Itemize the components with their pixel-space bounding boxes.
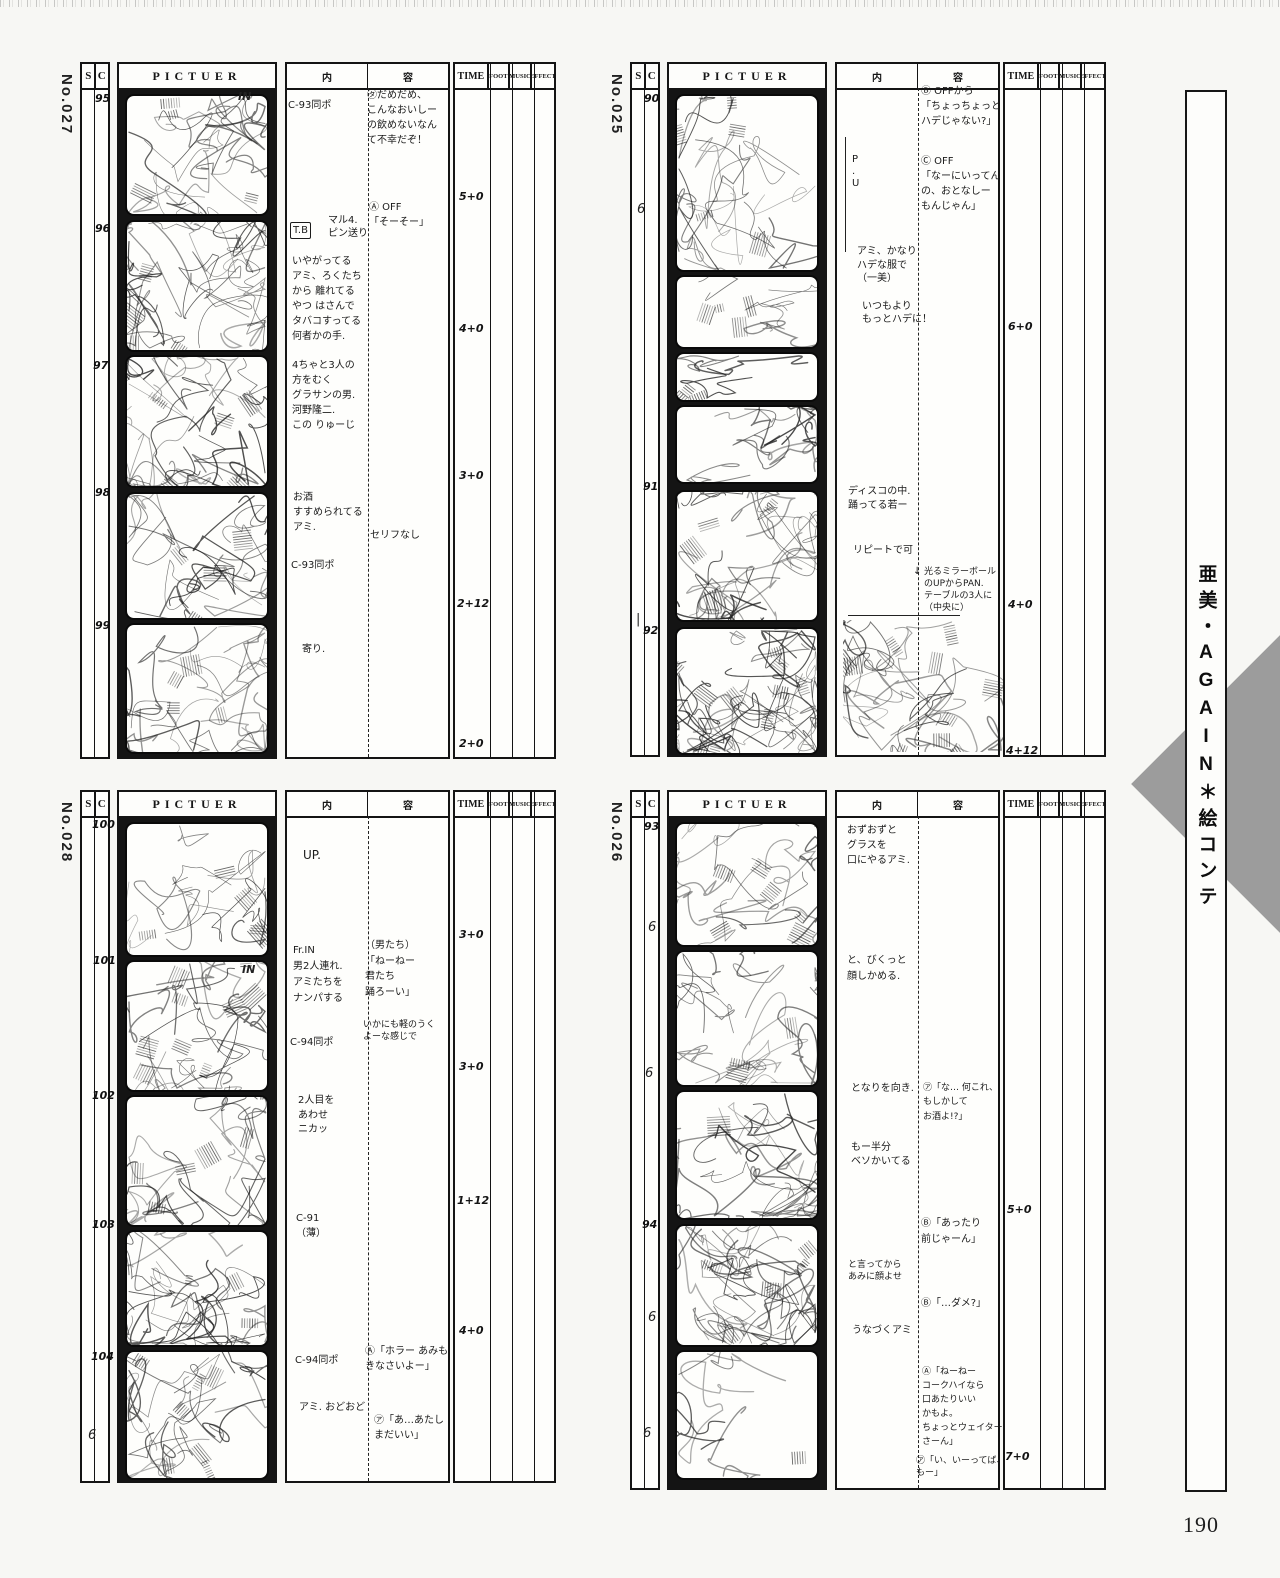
column-header-music: MUSIC: [510, 64, 532, 88]
dialogue-note: ㋟だめだめ、 こんなおいしー の飲めないなん て不幸だぞ！: [367, 88, 437, 148]
storyboard-frame: [675, 94, 819, 272]
storyboard-frame: [675, 822, 819, 947]
picture-filmstrip: PICTUER: [117, 790, 277, 1483]
storyboard-frame: [675, 950, 819, 1087]
column-header-music: MUSIC: [1060, 64, 1082, 88]
column-header-time: TIME: [1005, 64, 1039, 88]
storyboard-frame: [125, 1095, 269, 1227]
action-note: UP.: [303, 846, 321, 864]
pencil-sketch: [127, 962, 267, 1090]
dialogue-note: ㋐「あ…あたし まだいい」: [374, 1413, 444, 1443]
cut-number: 95: [95, 92, 110, 105]
action-note: C-93同ポ: [288, 98, 331, 113]
action-note: いやがってる アミ、ろくたち から 離れてる やつ はさんで タバコすってる 何…: [292, 254, 362, 344]
action-note: 2人目を あわせ ニカッ: [298, 1094, 334, 1138]
column-header-content-left: 内: [837, 792, 917, 816]
time-value: 5+0: [1007, 1203, 1032, 1216]
c-column-tick: 6: [648, 1310, 656, 1325]
camera-note-pan-up: P . U: [852, 154, 859, 190]
pencil-sketch: [127, 1232, 267, 1345]
action-note: C-94同ポ: [290, 1035, 333, 1050]
column-header-s: S: [632, 792, 645, 816]
time-value: 3+0: [459, 469, 484, 482]
column-header-music: MUSIC: [1060, 792, 1082, 816]
storyboard-frame: [125, 355, 269, 488]
pencil-sketch: [127, 494, 267, 618]
pencil-sketch: [127, 357, 267, 486]
sketch-stray-line: [848, 615, 960, 616]
crowd-sketch-overflow: [843, 620, 1003, 752]
storyboard-frame: [675, 1350, 819, 1480]
action-note: お酒 すすめられてる アミ.: [293, 490, 363, 535]
column-header-c: C: [95, 792, 109, 816]
pencil-sketch: [127, 1352, 267, 1478]
time-value: 2+0: [459, 737, 484, 750]
cut-number: 90: [644, 92, 659, 105]
column-header-foot: FOOT: [489, 792, 510, 816]
time-value: 2+12: [457, 597, 489, 610]
time-value: 3+0: [459, 1060, 484, 1073]
pencil-sketch: [127, 1097, 267, 1225]
column-header-picture: PICTUER: [119, 64, 275, 90]
column-header-time: TIME: [455, 792, 489, 816]
time-value: 5+0: [459, 190, 484, 203]
page-number: 190: [1183, 1512, 1219, 1538]
column-header-content-left: 内: [287, 64, 367, 88]
sheet-number-label: No.027: [58, 74, 75, 135]
column-header-effect: EFFECT: [1082, 792, 1104, 816]
pencil-sketch: [127, 824, 267, 955]
column-header-c: C: [645, 64, 659, 88]
dialogue-note: Ⓐ OFF 「そーそー」: [369, 200, 429, 230]
pencil-sketch: [677, 96, 817, 270]
c-column-tick: 6: [648, 920, 656, 935]
picture-filmstrip: PICTUER: [667, 790, 827, 1490]
s-column-tick: |: [636, 612, 640, 627]
storyboard-frame: [125, 1230, 269, 1347]
time-value: 7+0: [1005, 1450, 1030, 1463]
cut-number: 91: [643, 480, 658, 493]
vertical-title-strip: 亜美・AGAIN＊絵コンテ: [1185, 90, 1227, 1492]
column-header-music: MUSIC: [510, 792, 532, 816]
pencil-sketch: [677, 354, 817, 400]
column-header-content-right: 容: [917, 792, 998, 816]
cut-number: 101: [93, 954, 116, 967]
content-dashed-divider: [918, 816, 919, 1488]
storyboard-frame: [125, 822, 269, 957]
time-value: 1+12: [457, 1194, 489, 1207]
sheet-number-label: No.026: [608, 802, 625, 863]
dialogue-note: Ⓑ「あったり 前じゃーん」: [921, 1216, 981, 1247]
storyboard-frame: [675, 405, 819, 484]
pencil-sketch: [127, 222, 267, 350]
action-note: 4ちゃと3人の 方をむく グラサンの男. 河野隆二. この りゅーじ: [292, 358, 355, 433]
pencil-sketch: [677, 1226, 817, 1345]
pencil-sketch: [677, 407, 817, 482]
action-note: マル4. ピン送り: [328, 214, 368, 240]
picture-filmstrip: PICTUER: [117, 62, 277, 759]
storyboard-frame: [675, 1090, 819, 1220]
action-note: アミ. おどおど: [299, 1400, 365, 1415]
picture-filmstrip: PICTUER: [667, 62, 827, 757]
action-note: ディスコの中. 踊ってる若ー: [848, 485, 910, 513]
column-header-effect: EFFECT: [532, 64, 554, 88]
action-note: と、びくっと 顔しかめる.: [847, 953, 907, 985]
content-dashed-divider: [368, 88, 369, 757]
storyboard-frame: [125, 220, 269, 352]
c-column-tick: 6: [645, 1066, 653, 1081]
cut-number: 102: [92, 1089, 115, 1102]
cut-number: 100: [92, 818, 115, 831]
storyboard-frame: [125, 623, 269, 754]
action-note: もー半分 ベソかいてる: [851, 1141, 911, 1168]
cut-number: 96: [95, 222, 110, 235]
column-header-foot: FOOT: [489, 64, 510, 88]
action-note: C-91 （薄）: [296, 1211, 326, 1241]
storyboard-frame: [675, 1224, 819, 1347]
storyboard-sheet-028: No.028 S C 100 101 102 103 104 6 PICTUER…: [80, 790, 556, 1483]
storyboard-frame: [125, 94, 269, 216]
time-value: 4+0: [459, 322, 484, 335]
cut-number: 94: [642, 1218, 657, 1231]
action-note: アミ、かなり ハデな服で （一美）: [857, 245, 917, 286]
column-header-picture: PICTUER: [669, 792, 825, 818]
down-arrow-mark: ↓: [913, 564, 921, 579]
camera-note: 光るミラーボール のUPからPAN. テーブルの3人に （中央に）: [924, 566, 996, 615]
dialogue-note: Ⓐ「ホラー あみも きなさいよー」: [365, 1344, 448, 1374]
storyboard-sheet-025: No.025 S C 90 91 92 6 | PICTUER 内 容: [630, 62, 1106, 757]
s-column-tick: 6: [637, 202, 645, 217]
action-note: いつもより もっとハデに！: [862, 300, 932, 326]
cut-number: 92: [643, 624, 658, 637]
dialogue-note: セリフなし: [370, 528, 420, 543]
column-header-time: TIME: [455, 64, 489, 88]
frame-in-mark: IN: [242, 963, 255, 976]
column-header-picture: PICTUER: [119, 792, 275, 818]
column-header-content-right: 容: [367, 64, 448, 88]
storyboard-sheet-026: No.026 S C 93 94 6 6 6 6 PICTUER 内 容: [630, 790, 1106, 1490]
storyboard-frame: [675, 275, 819, 349]
column-header-picture: PICTUER: [669, 64, 825, 90]
time-value: 4+0: [459, 1324, 484, 1337]
column-header-time: TIME: [1005, 792, 1039, 816]
cut-number: 103: [92, 1218, 115, 1231]
dialogue-note: Ⓐ「ねーねー コークハイなら 口あたりいい かもよ。 ちょっとウェイター さーん…: [922, 1366, 1003, 1450]
column-header-c: C: [95, 64, 109, 88]
frame-in-mark: IN: [238, 90, 251, 103]
cut-number: 93: [644, 820, 659, 833]
dialogue-note: （男たち） 「ねーねー 君たち 踊ろーい」: [365, 938, 415, 1000]
time-value: 4+12: [1006, 744, 1038, 757]
storyboard-sheet-027: No.027 S C 95 96 97 98 99 PICTUER IN 内 容: [80, 62, 556, 759]
s-column-tick: 6: [88, 1428, 96, 1443]
pencil-sketch: [127, 96, 267, 214]
column-header-s: S: [82, 64, 95, 88]
sheet-number-label: No.025: [608, 74, 625, 135]
scan-noise-band: [0, 0, 1280, 7]
column-header-s: S: [632, 64, 645, 88]
pencil-sketch: [677, 629, 817, 753]
storyboard-frame: [675, 490, 819, 622]
dialogue-note: Ⓑ OFFから 「ちょっちょっと ハデじゃない?」: [921, 84, 1001, 129]
action-note: うなづくアミ: [852, 1323, 912, 1338]
time-value: 4+0: [1008, 598, 1033, 611]
cut-number: 97: [93, 359, 108, 372]
pencil-sketch: [677, 824, 817, 945]
sc-column-box: S C: [630, 62, 660, 757]
pencil-sketch: [127, 625, 267, 752]
pencil-sketch: [677, 1352, 817, 1478]
action-note: おずおずと グラスを 口にやるアミ.: [847, 823, 910, 868]
time-columns-box: TIME FOOT MUSIC EFFECT: [453, 790, 556, 1483]
column-header-foot: FOOT: [1039, 64, 1060, 88]
column-header-foot: FOOT: [1039, 792, 1060, 816]
storyboard-frame: [675, 627, 819, 755]
time-columns-box: TIME FOOT MUSIC EFFECT: [1003, 62, 1106, 757]
column-header-effect: EFFECT: [1082, 64, 1104, 88]
sheet-number-label: No.028: [58, 802, 75, 863]
dialogue-note: いかにも軽のうく よーな感じで: [363, 1020, 435, 1043]
column-header-s: S: [82, 792, 95, 816]
pencil-sketch: [677, 952, 817, 1085]
storyboard-frame: [125, 960, 269, 1092]
cut-number: 104: [91, 1350, 114, 1363]
dialogue-note: ㋐「い、いーってば、 もー」: [916, 1456, 1005, 1479]
action-note: Fr.IN 男2人連れ. アミたちを ナンパする: [293, 943, 343, 1007]
column-header-content-left: 内: [837, 64, 917, 88]
action-note: C-94同ポ: [295, 1353, 338, 1368]
cut-number: 98: [95, 486, 110, 499]
dialogue-note: Ⓑ「…ダメ?」: [921, 1296, 986, 1311]
storyboard-frame: [125, 1350, 269, 1480]
dialogue-note: ㋐「な… 何これ、 もしかして お酒よ!?」: [923, 1081, 998, 1124]
time-columns-box: TIME FOOT MUSIC EFFECT: [1003, 790, 1106, 1490]
dialogue-note: Ⓒ OFF 「なーにいってん の、おとなしー もんじゃん」: [921, 154, 1001, 214]
action-note: 寄り.: [302, 642, 325, 657]
column-header-content-right: 容: [367, 792, 448, 816]
pencil-sketch: [677, 492, 817, 620]
episode-title-vertical: 亜美・AGAIN＊絵コンテ: [1193, 564, 1220, 1490]
pan-up-arrow: [845, 137, 846, 252]
sc-column-box: S C: [80, 790, 110, 1483]
sc-column-box: S C: [630, 790, 660, 1490]
action-note: と言ってから あみに顔よせ: [848, 1260, 902, 1283]
pencil-sketch: [677, 277, 817, 347]
action-note-tb: T.B: [290, 222, 311, 239]
pencil-sketch: [677, 1092, 817, 1218]
content-dashed-divider: [368, 816, 369, 1481]
action-note: リピートで可: [853, 543, 913, 558]
column-header-c: C: [645, 792, 659, 816]
c-column-tick: 6: [643, 1426, 651, 1441]
sc-column-box: S C: [80, 62, 110, 759]
time-columns-box: TIME FOOT MUSIC EFFECT: [453, 62, 556, 759]
cut-number: 99: [95, 619, 110, 632]
action-note: となりを向き.: [851, 1081, 914, 1096]
column-header-content-left: 内: [287, 792, 367, 816]
time-value: 6+0: [1008, 320, 1033, 333]
time-value: 3+0: [459, 928, 484, 941]
storyboard-frame: [675, 352, 819, 402]
storyboard-page: No.027 S C 95 96 97 98 99 PICTUER IN 内 容: [0, 0, 1280, 1578]
column-header-effect: EFFECT: [532, 792, 554, 816]
storyboard-frame: [125, 492, 269, 620]
action-note: C-93同ポ: [291, 558, 334, 573]
